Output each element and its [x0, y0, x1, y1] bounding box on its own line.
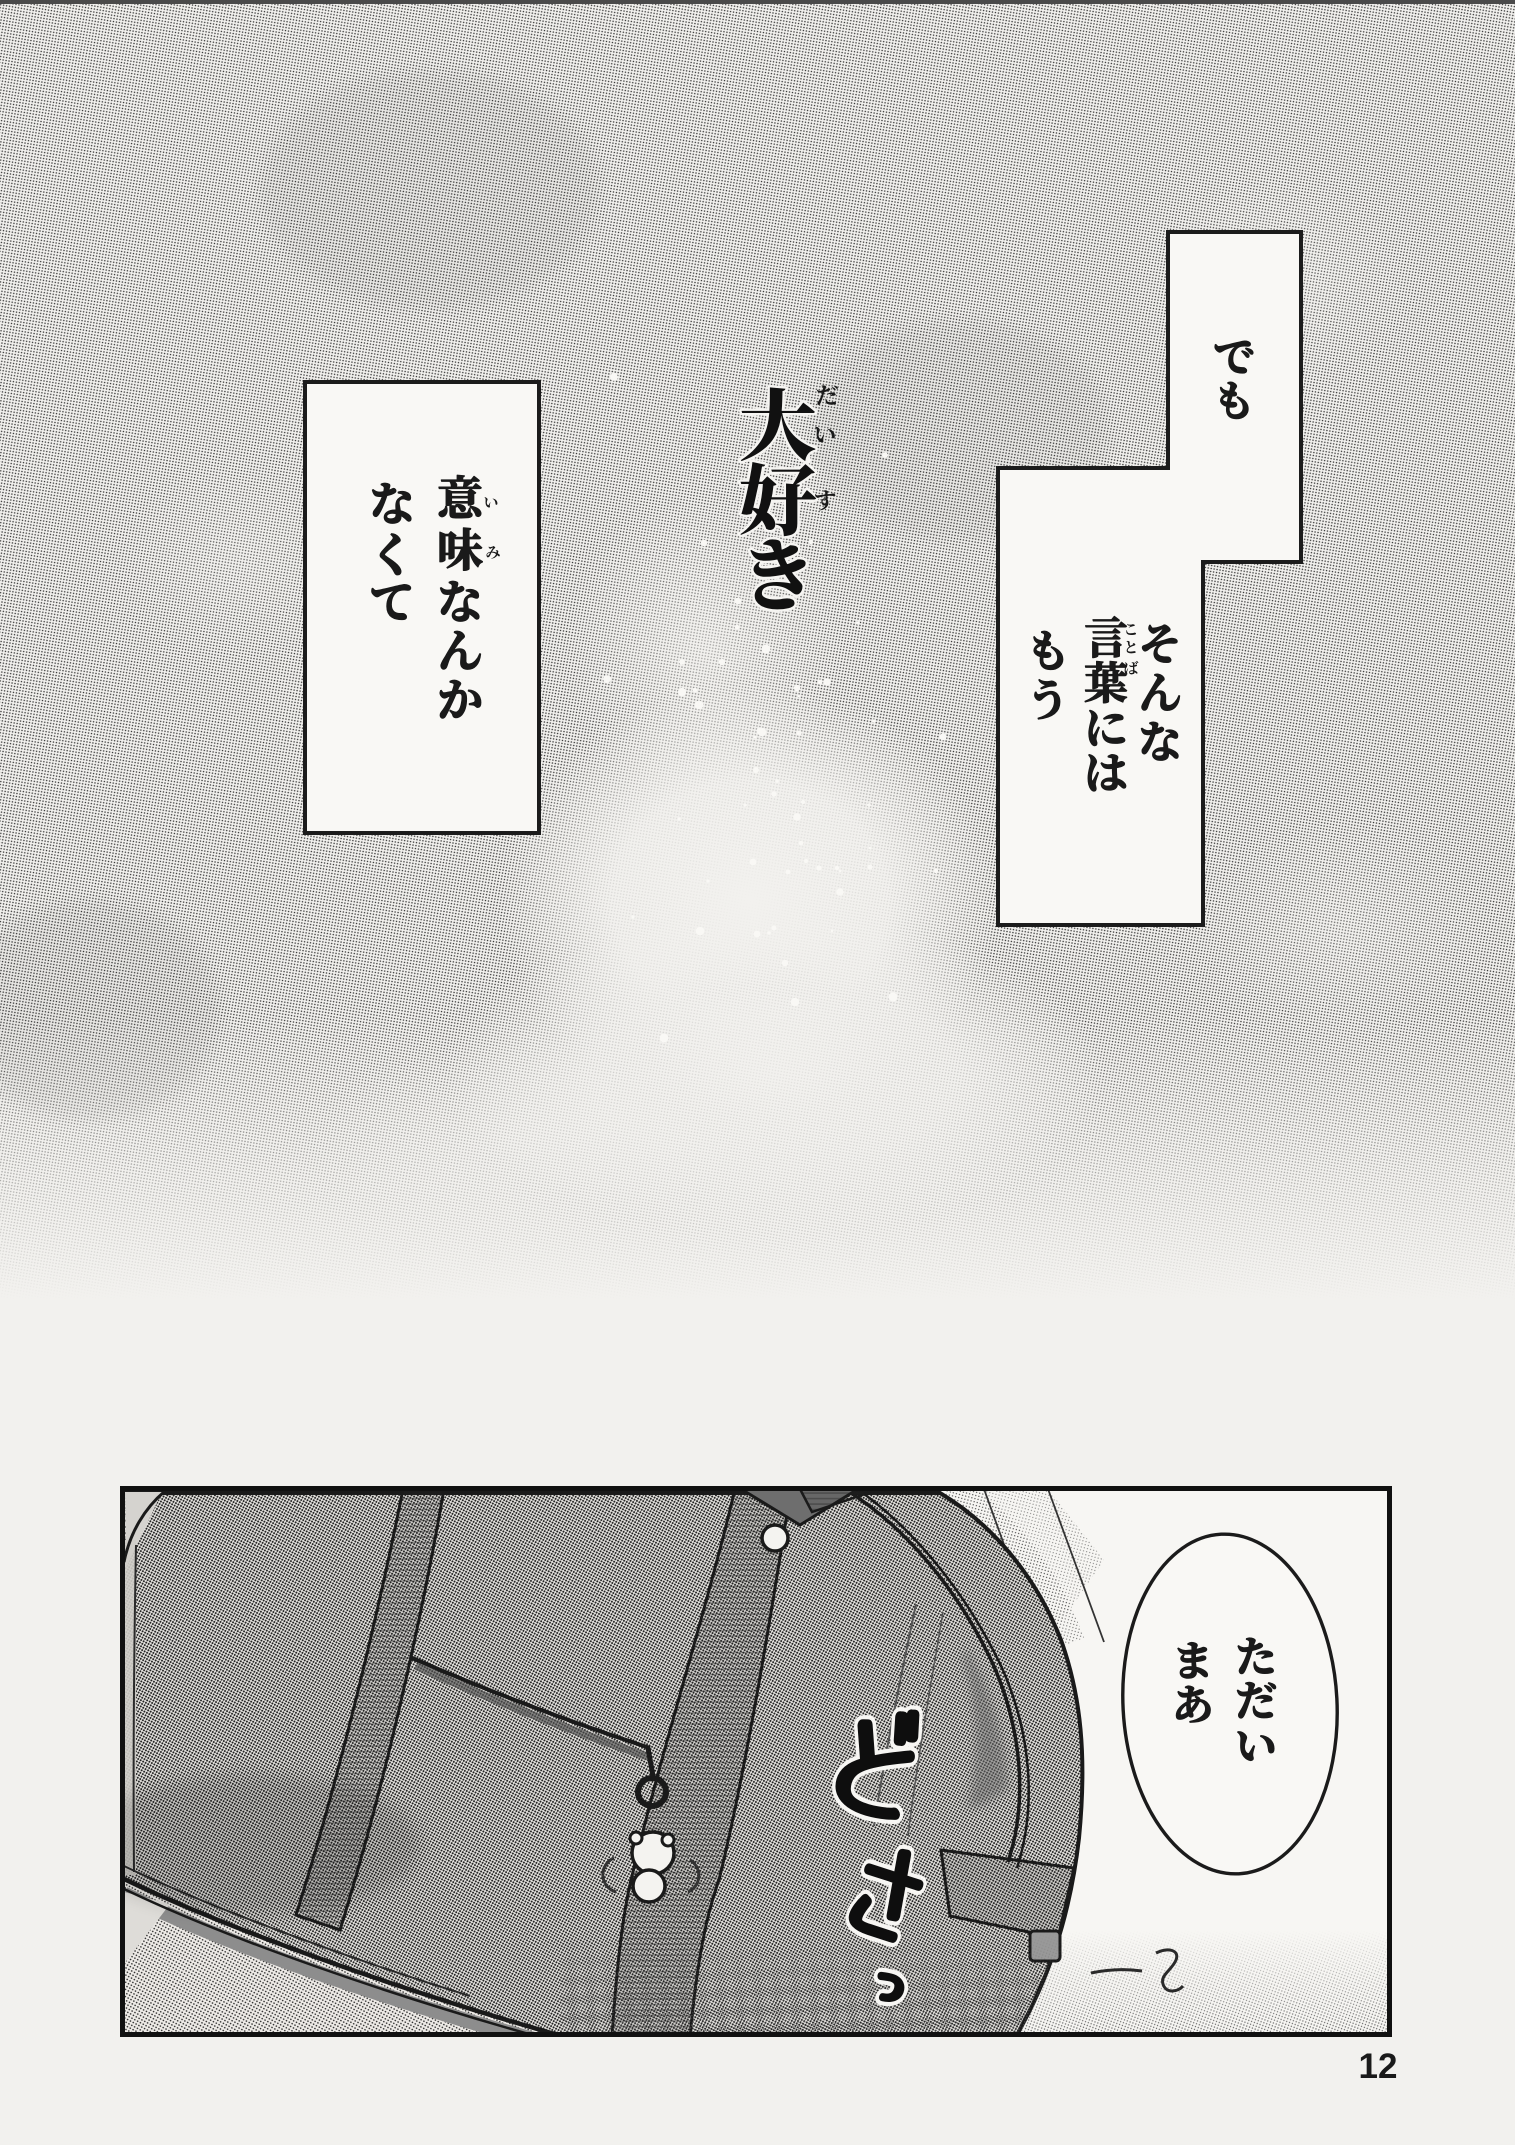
svg-text:12: 12 [1359, 2047, 1398, 2086]
